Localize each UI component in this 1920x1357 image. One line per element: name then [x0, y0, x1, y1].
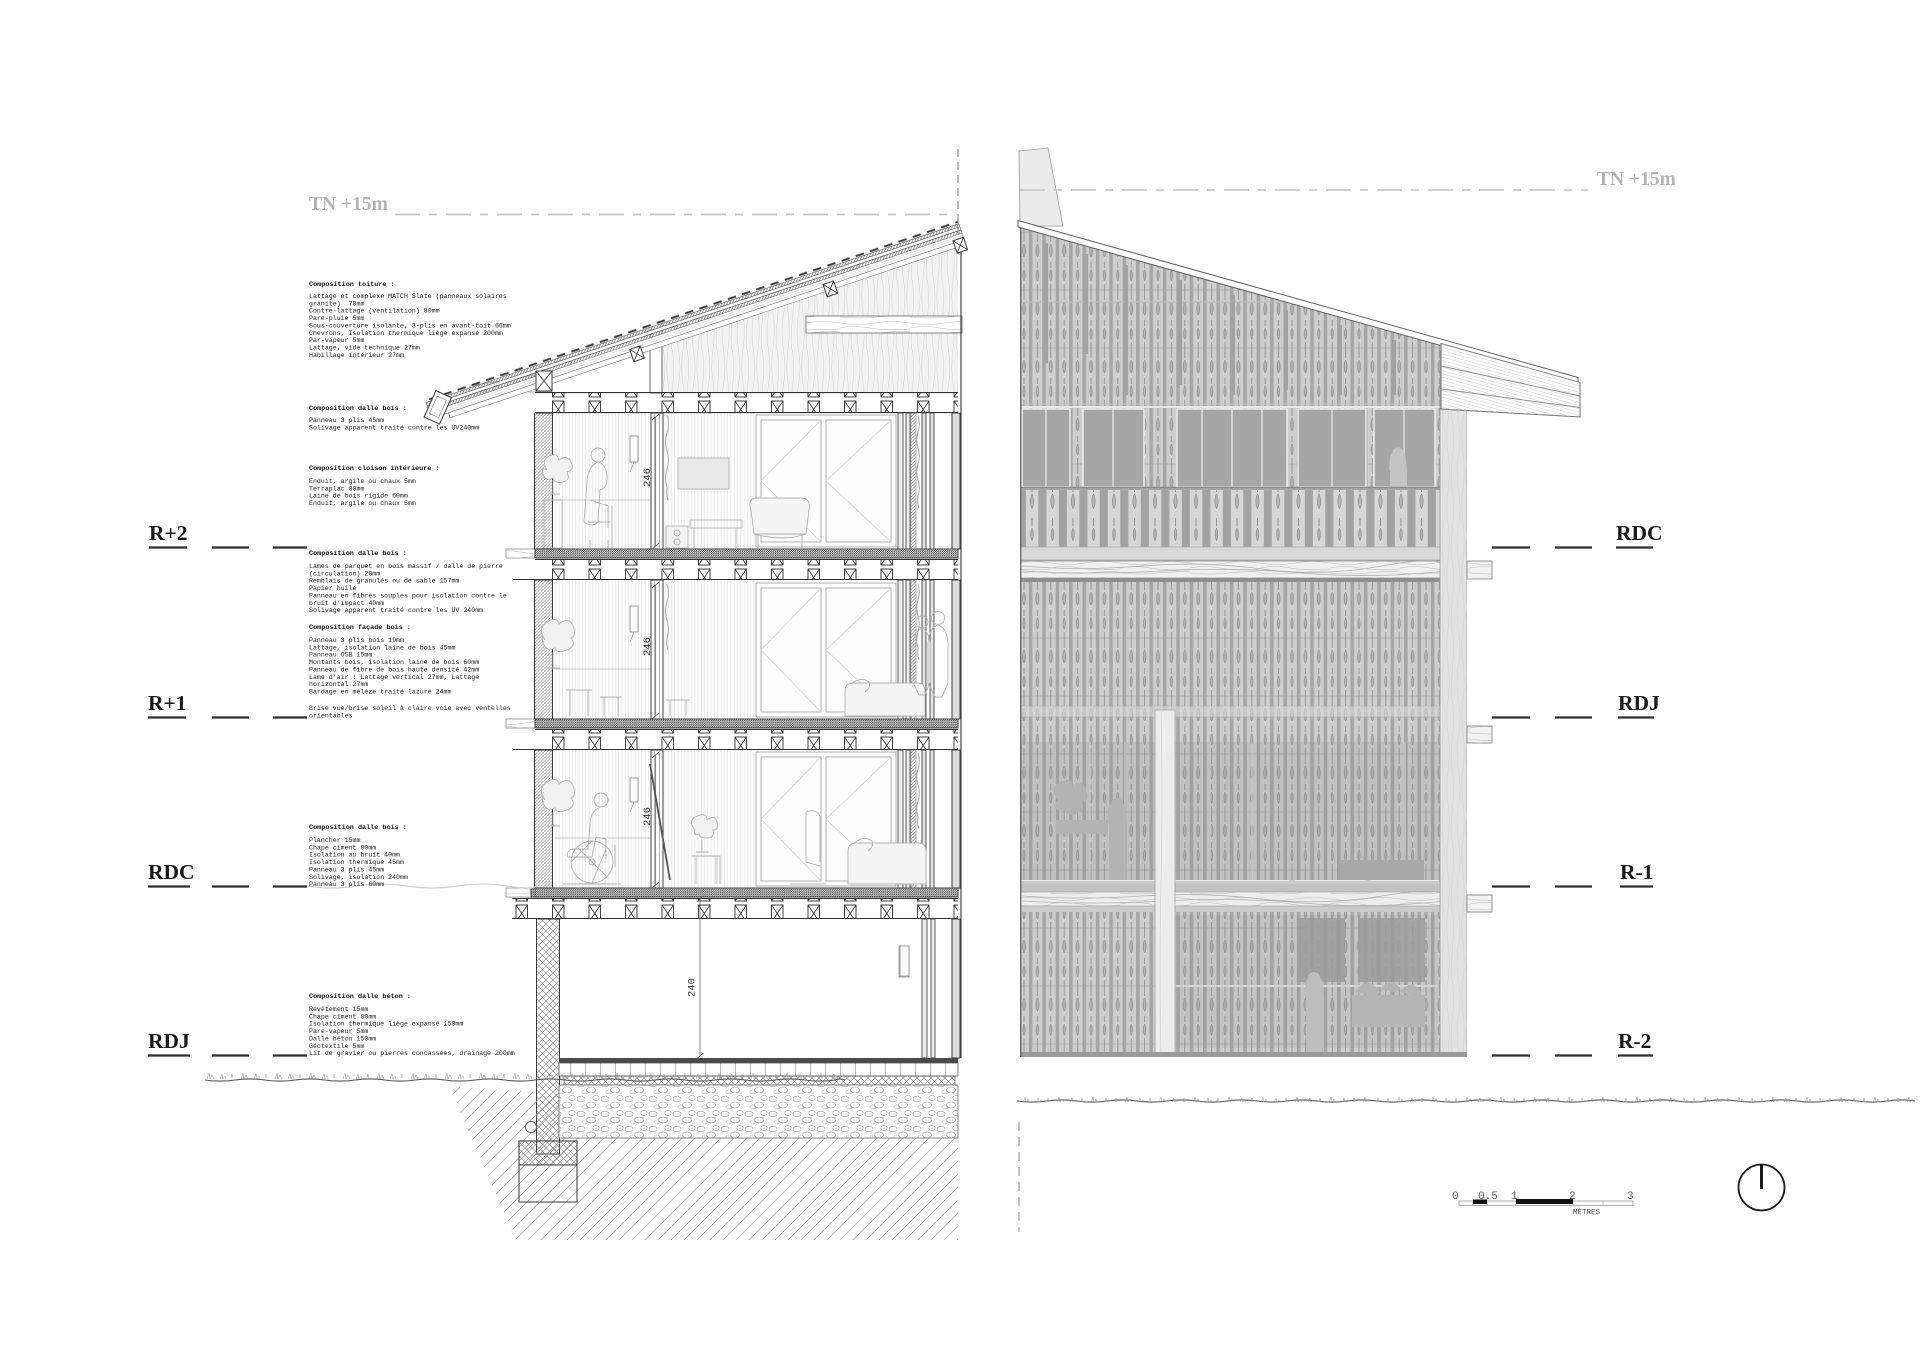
svg-text:RDJ: RDJ	[1618, 691, 1660, 715]
svg-text:Composition cloison intérieure: Composition cloison intérieure :	[309, 465, 440, 473]
svg-text:Composition toiture :: Composition toiture :	[309, 281, 395, 289]
svg-text:R-1: R-1	[1620, 860, 1653, 884]
svg-text:RDC: RDC	[1616, 521, 1663, 545]
svg-text:Composition dalle bois :: Composition dalle bois :	[309, 824, 407, 832]
svg-text:MÈTRES: MÈTRES	[1573, 1208, 1601, 1217]
svg-text:R-2: R-2	[1618, 1029, 1651, 1053]
svg-text:246: 246	[642, 637, 654, 656]
svg-text:246: 246	[642, 807, 654, 826]
svg-text:Composition dalle bois :: Composition dalle bois :	[309, 405, 407, 413]
svg-text:Composition dalle béton :: Composition dalle béton :	[309, 993, 411, 1001]
svg-text:0: 0	[1452, 1191, 1459, 1203]
svg-text:TN +15m: TN +15m	[309, 194, 388, 215]
svg-text:Enduit, argile ou chaux 5mm Te: Enduit, argile ou chaux 5mm Terraplac 80…	[309, 478, 420, 507]
svg-text:240: 240	[687, 978, 699, 997]
svg-text:RDC: RDC	[148, 860, 195, 884]
svg-text:246: 246	[642, 468, 654, 487]
svg-text:TN +15m: TN +15m	[1597, 169, 1676, 190]
svg-text:Composition dalle bois :: Composition dalle bois :	[309, 550, 407, 558]
svg-text:Composition façade bois :: Composition façade bois :	[309, 624, 411, 632]
svg-text:R+1: R+1	[148, 691, 187, 715]
svg-text:RDJ: RDJ	[148, 1029, 190, 1053]
svg-text:R+2: R+2	[149, 521, 188, 545]
